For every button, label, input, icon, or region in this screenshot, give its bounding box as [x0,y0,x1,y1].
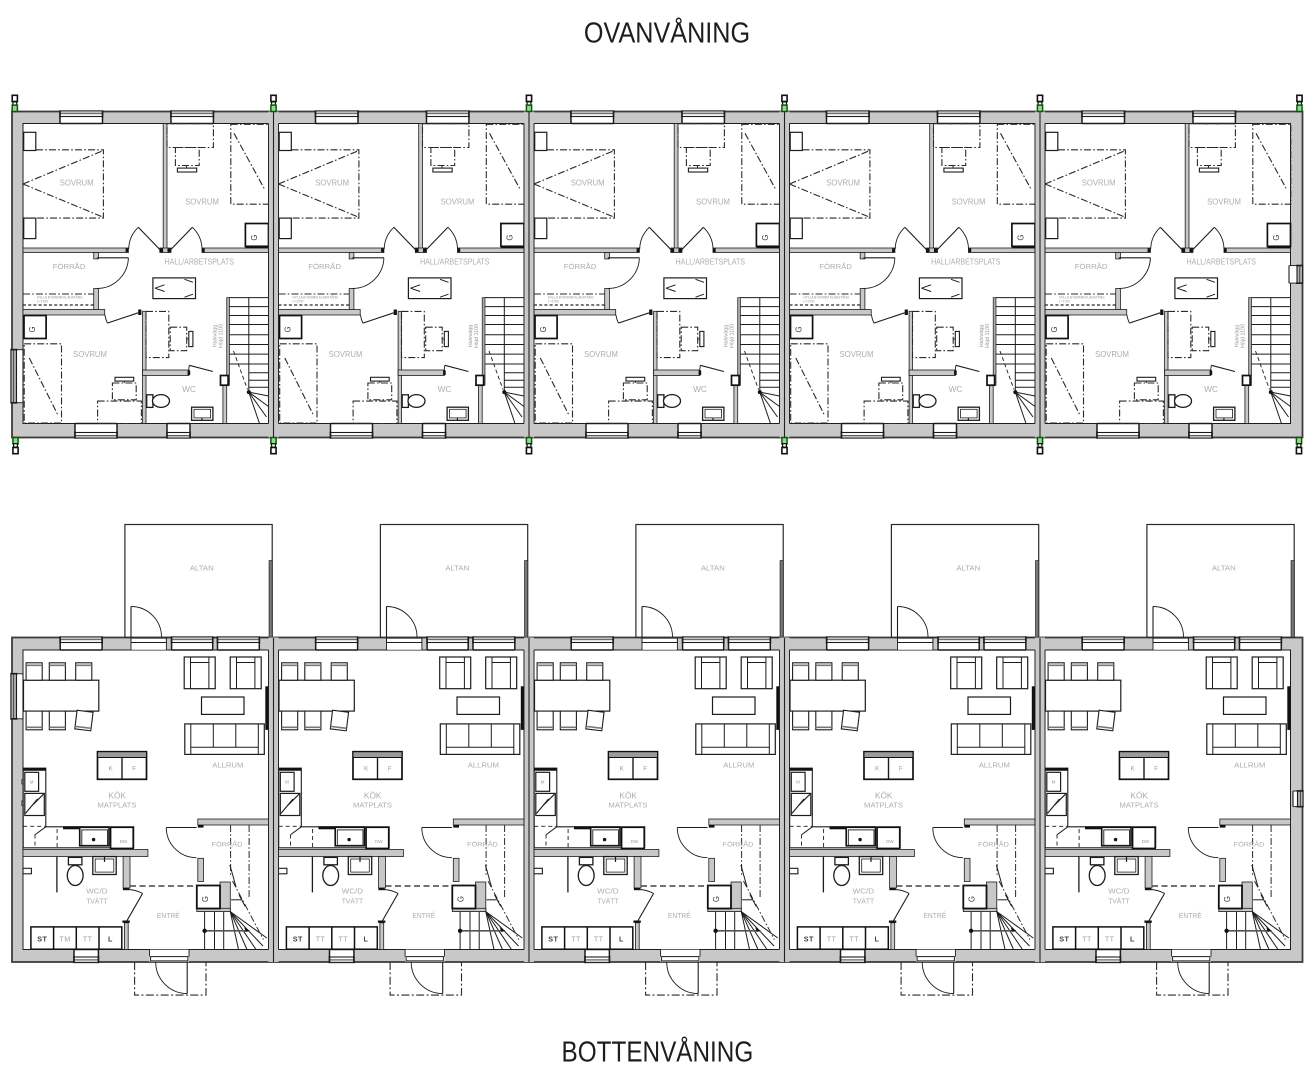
svg-text:Halvvägg: Halvvägg [724,325,730,347]
svg-text:SOVRUM: SOVRUM [73,349,107,359]
svg-text:Halvvägg: Halvvägg [979,325,985,347]
svg-text:TT: TT [1082,934,1092,943]
svg-text:FÖRRÅD: FÖRRÅD [819,262,852,271]
svg-text:L: L [619,934,624,943]
svg-text:FÖRRÅD: FÖRRÅD [212,840,243,849]
svg-text:SOVRUM: SOVRUM [826,177,860,187]
svg-text:TT: TT [1105,934,1115,943]
svg-text:L=1700: L=1700 [548,299,559,303]
svg-text:G: G [712,896,721,902]
svg-text:SOVRUM: SOVRUM [840,349,874,359]
svg-text:ALLRUM: ALLRUM [212,760,243,769]
svg-text:KÖK: KÖK [364,791,382,800]
svg-text:L=1700: L=1700 [804,299,815,303]
svg-text:ALLRUM: ALLRUM [1234,760,1265,769]
svg-text:OVANVÅNING: OVANVÅNING [584,16,750,49]
svg-text:L=1700: L=1700 [293,299,304,303]
svg-text:G: G [506,235,515,241]
svg-text:ST: ST [37,934,47,943]
svg-text:SOVRUM: SOVRUM [696,197,730,207]
svg-text:TT: TT [338,934,348,943]
svg-text:SOVRUM: SOVRUM [329,349,363,359]
svg-text:Höjd 1100: Höjd 1100 [730,324,736,348]
svg-text:L: L [1130,934,1135,943]
svg-text:M: M [30,780,34,785]
svg-text:TVÄTT: TVÄTT [597,898,619,906]
svg-text:DW: DW [1142,839,1150,844]
svg-text:DW: DW [120,839,128,844]
svg-text:L: L [875,934,880,943]
svg-text:G: G [968,896,977,902]
svg-text:WC: WC [182,385,196,394]
svg-text:WC/D: WC/D [1108,889,1129,896]
svg-text:TVÄTT: TVÄTT [342,898,364,906]
svg-text:TT: TT [849,934,859,943]
svg-text:K: K [108,766,113,773]
svg-text:ST: ST [548,934,558,943]
svg-text:FÖRRÅD: FÖRRÅD [723,840,754,849]
svg-text:G: G [1272,235,1281,241]
svg-text:SOVRUM: SOVRUM [315,177,349,187]
svg-text:DW: DW [886,839,894,844]
svg-text:Halvvägg: Halvvägg [213,325,219,347]
svg-text:DW: DW [375,839,383,844]
svg-text:ALTAN: ALTAN [956,563,980,572]
svg-text:TT: TT [83,934,93,943]
svg-text:G: G [1017,235,1026,241]
svg-text:TT: TT [594,934,604,943]
svg-text:ALTAN: ALTAN [190,563,214,572]
svg-text:F: F [388,766,392,773]
svg-text:MATPLATS: MATPLATS [98,801,137,810]
svg-text:TT: TT [571,934,581,943]
svg-text:SOVRUM: SOVRUM [1207,197,1241,207]
svg-text:ENTRÉ: ENTRÉ [923,911,946,920]
svg-text:WC: WC [693,385,707,394]
svg-text:SOVRUM: SOVRUM [571,177,605,187]
svg-text:WC: WC [949,385,963,394]
svg-text:WC/D: WC/D [597,889,618,896]
svg-text:ENTRÉ: ENTRÉ [412,911,435,920]
svg-text:ENTRÉ: ENTRÉ [1179,911,1202,920]
svg-text:G: G [284,326,293,332]
svg-text:KÖK: KÖK [108,791,126,800]
svg-text:KÖK: KÖK [1130,791,1148,800]
svg-text:G: G [761,235,770,241]
svg-text:ENTRÉ: ENTRÉ [157,911,180,920]
svg-text:BOTTENVÅNING: BOTTENVÅNING [562,1035,754,1068]
svg-text:ALLRUM: ALLRUM [979,760,1010,769]
svg-text:KÖK: KÖK [875,791,893,800]
svg-text:TT: TT [316,934,326,943]
svg-text:FÖRRÅD: FÖRRÅD [467,840,498,849]
svg-text:WC/D: WC/D [853,889,874,896]
svg-text:G: G [1050,326,1059,332]
svg-text:Höjd 1100: Höjd 1100 [1241,324,1247,348]
svg-text:HALL/ARBETSPLATS: HALL/ARBETSPLATS [931,257,1001,267]
svg-text:FÖRRÅD: FÖRRÅD [308,262,341,271]
svg-text:L=1700: L=1700 [37,299,48,303]
svg-text:TM: TM [59,934,70,943]
svg-text:G: G [539,326,548,332]
svg-text:TT: TT [827,934,837,943]
svg-text:K: K [1130,766,1135,773]
svg-text:HALL/ARBETSPLATS: HALL/ARBETSPLATS [676,257,746,267]
svg-text:L=1700: L=1700 [1059,299,1070,303]
svg-text:TVÄTT: TVÄTT [853,898,875,906]
svg-text:L: L [108,934,113,943]
svg-text:ALTAN: ALTAN [1212,563,1236,572]
svg-text:MATPLATS: MATPLATS [1120,801,1159,810]
svg-text:WC: WC [1204,385,1218,394]
svg-text:Höjd 1100: Höjd 1100 [219,324,225,348]
svg-text:SOVRUM: SOVRUM [1082,177,1116,187]
svg-text:ALTAN: ALTAN [701,563,725,572]
svg-text:L: L [364,934,369,943]
svg-text:HALL/ARBETSPLATS: HALL/ARBETSPLATS [420,257,490,267]
svg-text:Halvvägg: Halvvägg [468,325,474,347]
svg-text:ALLRUM: ALLRUM [468,760,499,769]
svg-text:M: M [1052,780,1056,785]
svg-text:G: G [795,326,804,332]
svg-text:SOVRUM: SOVRUM [1095,349,1129,359]
svg-text:F: F [643,766,647,773]
svg-text:WC/D: WC/D [342,889,363,896]
svg-text:Höjd 1100: Höjd 1100 [474,324,480,348]
svg-text:ALTAN: ALTAN [445,563,469,572]
svg-text:ST: ST [293,934,303,943]
svg-text:ST: ST [804,934,814,943]
svg-text:K: K [875,766,880,773]
svg-text:F: F [132,766,136,773]
svg-text:G: G [457,896,466,902]
svg-text:MATPLATS: MATPLATS [609,801,648,810]
svg-text:Höjd 1100: Höjd 1100 [985,324,991,348]
svg-text:MATPLATS: MATPLATS [353,801,392,810]
svg-text:SOVRUM: SOVRUM [185,197,219,207]
svg-text:F: F [899,766,903,773]
svg-text:FÖRRÅD: FÖRRÅD [978,840,1009,849]
svg-text:ST: ST [1059,934,1069,943]
svg-text:G: G [250,235,259,241]
svg-text:SOVRUM: SOVRUM [441,197,475,207]
svg-text:F: F [1154,766,1158,773]
svg-text:M: M [796,780,800,785]
svg-text:DW: DW [631,839,639,844]
svg-text:G: G [1223,896,1232,902]
svg-text:SOVRUM: SOVRUM [60,177,94,187]
svg-text:FÖRRÅD: FÖRRÅD [1234,840,1265,849]
svg-text:KÖK: KÖK [619,791,637,800]
svg-text:FÖRRÅD: FÖRRÅD [1075,262,1108,271]
svg-text:K: K [364,766,369,773]
svg-text:FÖRRÅD: FÖRRÅD [53,262,86,271]
svg-text:HALL/ARBETSPLATS: HALL/ARBETSPLATS [1187,257,1257,267]
svg-text:ALLRUM: ALLRUM [723,760,754,769]
svg-text:TVÄTT: TVÄTT [86,898,108,906]
svg-text:WC: WC [438,385,452,394]
svg-text:ENTRÉ: ENTRÉ [668,911,691,920]
svg-text:G: G [201,896,210,902]
svg-text:SOVRUM: SOVRUM [584,349,618,359]
svg-text:FÖRRÅD: FÖRRÅD [564,262,597,271]
svg-text:Halvvägg: Halvvägg [1235,325,1241,347]
svg-text:G: G [28,326,37,332]
svg-text:TVÄTT: TVÄTT [1108,898,1130,906]
svg-text:K: K [619,766,624,773]
svg-text:MATPLATS: MATPLATS [864,801,903,810]
svg-text:HALL/ARBETSPLATS: HALL/ARBETSPLATS [165,257,235,267]
svg-text:WC/D: WC/D [86,889,107,896]
svg-text:SOVRUM: SOVRUM [952,197,986,207]
svg-text:M: M [541,780,545,785]
svg-text:M: M [285,780,289,785]
